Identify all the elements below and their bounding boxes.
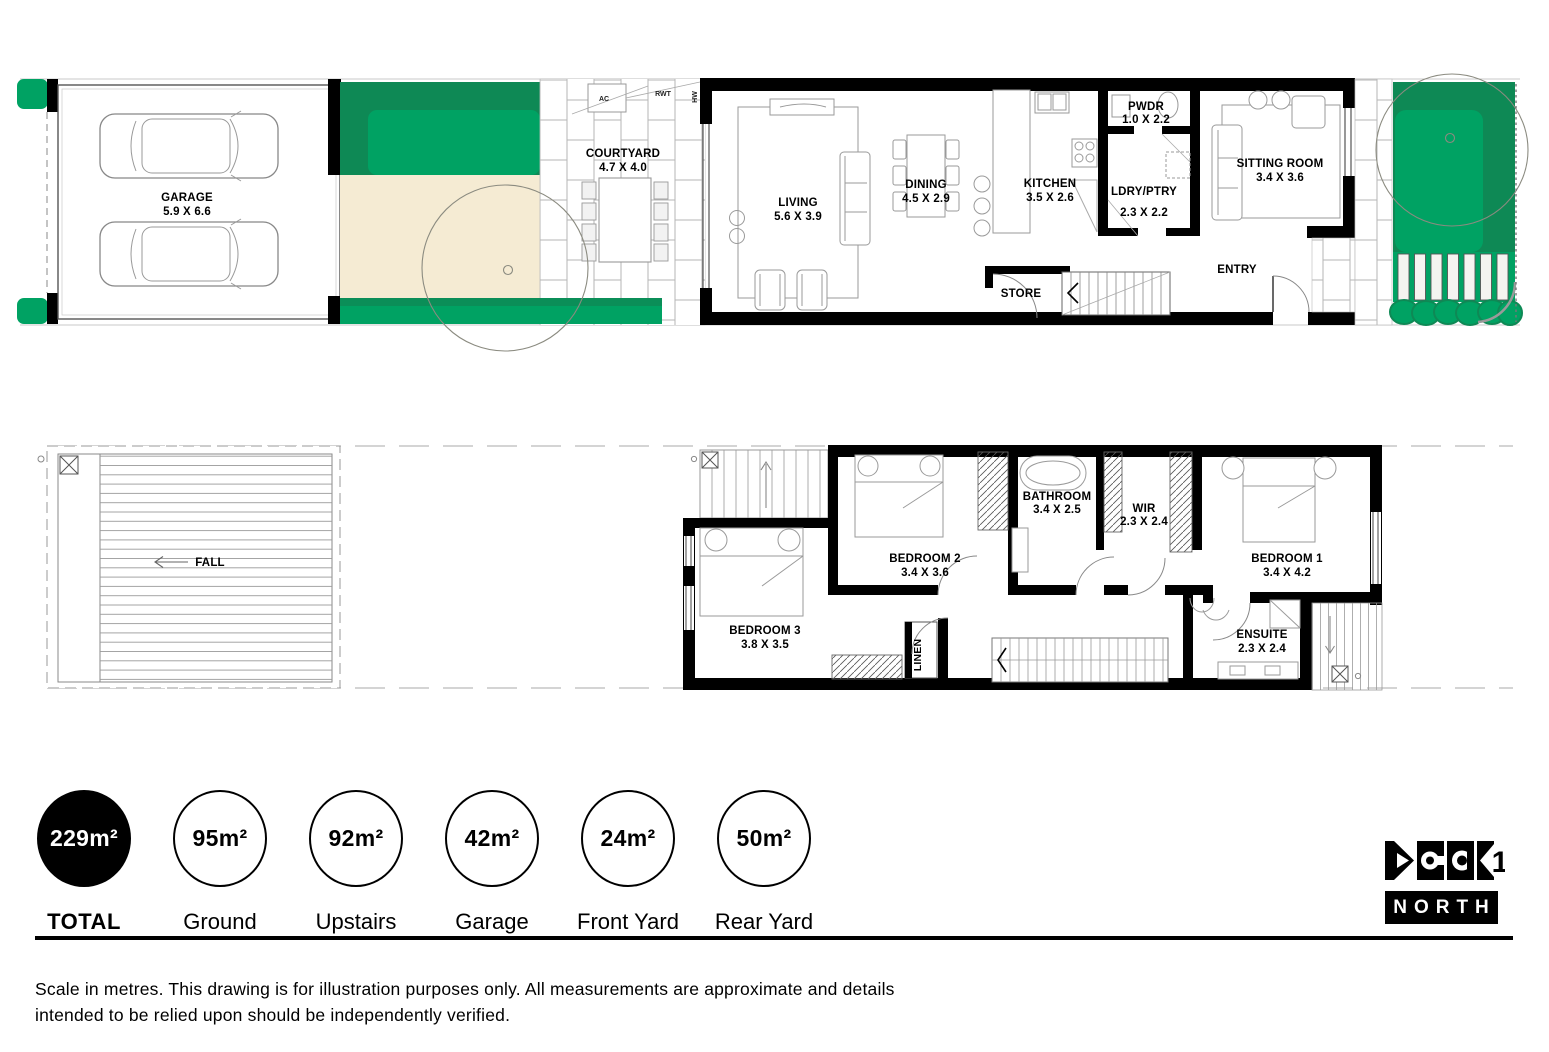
badge-circle: 92m² <box>309 790 403 887</box>
badge-label: Rear Yard <box>715 909 813 935</box>
badge-circle: 95m² <box>173 790 267 887</box>
room-label: GARAGE <box>161 192 213 204</box>
badge-value: 24m² <box>601 825 656 852</box>
sofa <box>1212 125 1242 220</box>
upper-stair-center <box>992 638 1168 682</box>
badge-value: 229m² <box>50 825 118 852</box>
badge-circle: 42m² <box>445 790 539 887</box>
svg-text:3.4 X 4.2: 3.4 X 4.2 <box>1263 567 1311 579</box>
room-label: LDRY/PTRY <box>1111 186 1177 198</box>
dock1-logo-mark: 1 <box>1385 841 1505 881</box>
outdoor-table <box>582 178 668 262</box>
svg-text:4.5 X 2.9: 4.5 X 2.9 <box>902 193 950 205</box>
ground-floor-plan: GARAGE 5.9 X 6.6 COURTYARD 4.7 X 4.0 LIV… <box>17 74 1528 351</box>
svg-text:3.8 X 3.5: 3.8 X 3.5 <box>741 639 789 651</box>
badge-value: 50m² <box>737 825 792 852</box>
svg-text:5.6 X 3.9: 5.6 X 3.9 <box>774 211 822 223</box>
svg-text:2.3 X 2.4: 2.3 X 2.4 <box>1120 516 1168 528</box>
badge-value: 92m² <box>329 825 384 852</box>
room-label: BEDROOM 3 <box>729 625 800 637</box>
badge-label: Ground <box>183 909 256 935</box>
badge-circle: 50m² <box>717 790 811 887</box>
ac-label: AC <box>599 96 609 103</box>
car-icon <box>100 111 278 181</box>
roof-area: FALL <box>38 446 340 688</box>
room-label: STORE <box>1001 288 1042 300</box>
footer-divider <box>35 936 1513 940</box>
hw-label: HW <box>692 91 699 103</box>
svg-text:1.0 X 2.2: 1.0 X 2.2 <box>1122 114 1170 126</box>
room-label: ENTRY <box>1217 264 1257 276</box>
kerb-green-bottom <box>17 298 48 324</box>
toilet <box>1203 610 1229 620</box>
fall-label: FALL <box>195 557 225 569</box>
logo-digit: 1 <box>1492 846 1505 879</box>
svg-text:4.7 X 4.0: 4.7 X 4.0 <box>599 162 647 174</box>
courtyard-paving <box>540 79 705 325</box>
svg-text:3.5 X 2.6: 3.5 X 2.6 <box>1026 192 1074 204</box>
room-label: PWDR <box>1128 101 1164 113</box>
entry-door <box>1273 238 1355 312</box>
room-label: WIR <box>1133 503 1156 515</box>
floorplan-canvas: GARAGE 5.9 X 6.6 COURTYARD 4.7 X 4.0 LIV… <box>0 0 1549 1052</box>
svg-text:2.3 X 2.2: 2.3 X 2.2 <box>1120 207 1168 219</box>
upper-floor-plan: FALL <box>38 445 1513 690</box>
room-label: COURTYARD <box>586 148 660 160</box>
room-label: BEDROOM 1 <box>1251 553 1323 565</box>
upper-stair-top <box>691 450 828 518</box>
disclaimer-text: Scale in metres. This drawing is for ill… <box>35 976 935 1029</box>
badge-garage: 42m² Garage <box>424 790 560 935</box>
kitchen-fittings <box>974 90 1097 236</box>
room-label: LIVING <box>778 197 818 209</box>
svg-text:3.4 X 3.6: 3.4 X 3.6 <box>901 567 949 579</box>
room-label: DINING <box>905 179 946 191</box>
sand-area <box>340 175 540 300</box>
badge-front-yard: 24m² Front Yard <box>560 790 696 935</box>
sitting-room-furniture <box>1212 91 1340 220</box>
porch-path <box>1355 79 1392 325</box>
window <box>1345 108 1351 176</box>
balcony <box>1312 603 1382 690</box>
washer <box>1166 152 1190 178</box>
badge-rear-yard: 50m² Rear Yard <box>696 790 832 935</box>
badge-ground: 95m² Ground <box>152 790 288 935</box>
stepping-stones <box>1398 254 1508 300</box>
badge-label: Front Yard <box>577 909 679 935</box>
badge-total: 229m² TOTAL <box>16 790 152 935</box>
island-bench <box>993 90 1030 233</box>
badge-label: TOTAL <box>47 909 121 935</box>
linen-label: LINEN <box>912 639 924 672</box>
svg-text:3.4 X 2.5: 3.4 X 2.5 <box>1033 504 1081 516</box>
badge-upstairs: 92m² Upstairs <box>288 790 424 935</box>
room-label: KITCHEN <box>1024 178 1077 190</box>
door-arc <box>1273 276 1309 312</box>
room-label: BEDROOM 2 <box>889 553 960 565</box>
badge-label: Upstairs <box>316 909 397 935</box>
svg-text:2.3 X 2.4: 2.3 X 2.4 <box>1238 643 1286 655</box>
badge-circle: 24m² <box>581 790 675 887</box>
svg-text:5.9 X 6.6: 5.9 X 6.6 <box>163 206 211 218</box>
car-icon <box>100 219 278 289</box>
armchair <box>1292 96 1325 128</box>
north-label: NORTH <box>1385 891 1498 924</box>
rwt-label: RWT <box>655 91 672 98</box>
bed-icon <box>700 528 803 616</box>
svg-text:3.4 X 3.6: 3.4 X 3.6 <box>1256 172 1304 184</box>
badge-circle: 229m² <box>37 790 131 887</box>
badge-label: Garage <box>455 909 528 935</box>
vanity <box>1012 528 1028 572</box>
room-label: SITTING ROOM <box>1237 158 1324 170</box>
badge-value: 42m² <box>465 825 520 852</box>
bed-icon <box>1222 457 1336 542</box>
rear-yard <box>1376 74 1528 325</box>
room-label: ENSUITE <box>1236 629 1287 641</box>
room-label: BATHROOM <box>1023 491 1091 503</box>
dock1-north-logo: 1 NORTH <box>1385 841 1510 924</box>
area-badges: 229m² TOTAL 95m² Ground 92m² Upstairs 42… <box>16 790 832 935</box>
robe-bed3 <box>832 655 902 679</box>
badge-value: 95m² <box>193 825 248 852</box>
kerb-green-top <box>17 79 48 109</box>
bed-icon <box>855 455 943 537</box>
front-yard <box>340 82 540 300</box>
